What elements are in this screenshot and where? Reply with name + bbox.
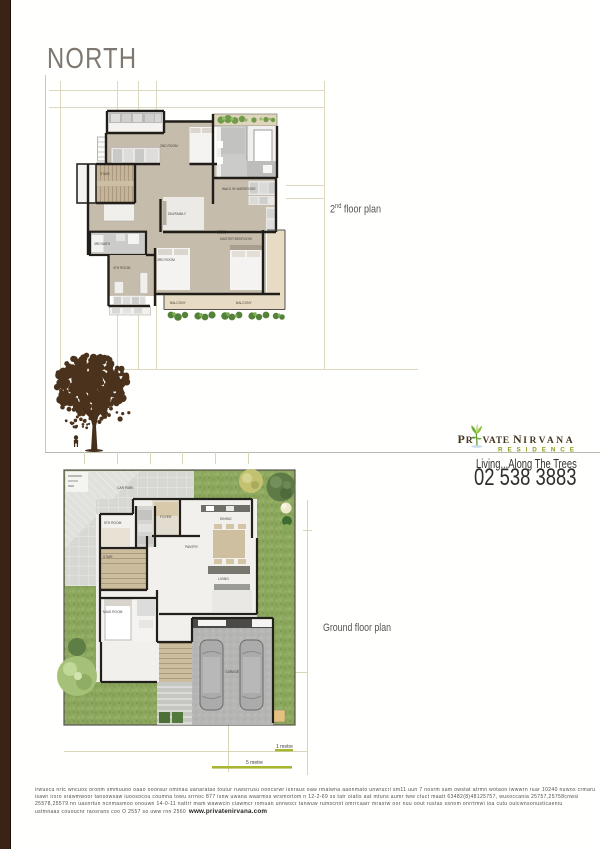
svg-text:5TH ROOM: 5TH ROOM xyxy=(104,521,122,525)
svg-text:5 metre: 5 metre xyxy=(246,760,263,766)
svg-text:DINING: DINING xyxy=(220,517,232,521)
svg-text:STAIR: STAIR xyxy=(100,172,110,176)
svg-text:DIN/FAMILY: DIN/FAMILY xyxy=(168,212,187,216)
svg-text:4TH ROOM: 4TH ROOM xyxy=(113,266,131,270)
svg-text:RESIDENCE: RESIDENCE xyxy=(498,447,579,454)
svg-text:WALK IN WARDROBE: WALK IN WARDROBE xyxy=(222,187,256,191)
svg-text:BALCONY: BALCONY xyxy=(170,301,187,305)
svg-text:PANTRY: PANTRY xyxy=(185,545,199,549)
svg-text:LIVING: LIVING xyxy=(218,577,229,581)
svg-text:3RD ROOM: 3RD ROOM xyxy=(157,258,175,262)
svg-text:2ND ROOM: 2ND ROOM xyxy=(160,144,178,148)
svg-text:VATE: VATE xyxy=(483,436,510,446)
svg-text:IRVANA: IRVANA xyxy=(523,436,575,446)
svg-text:CAR PARK: CAR PARK xyxy=(117,486,134,490)
svg-text:STAIR: STAIR xyxy=(103,555,113,559)
svg-text:N: N xyxy=(513,432,522,446)
svg-text:MAID ROOM: MAID ROOM xyxy=(103,610,123,614)
svg-text:3RD BATH: 3RD BATH xyxy=(94,242,111,246)
svg-text:FOYER: FOYER xyxy=(160,515,172,519)
svg-text:MASTER BEDROOM: MASTER BEDROOM xyxy=(220,237,252,241)
svg-text:P: P xyxy=(458,432,465,446)
svg-text:GARAGE: GARAGE xyxy=(225,670,240,674)
svg-text:BALCONY: BALCONY xyxy=(236,301,253,305)
